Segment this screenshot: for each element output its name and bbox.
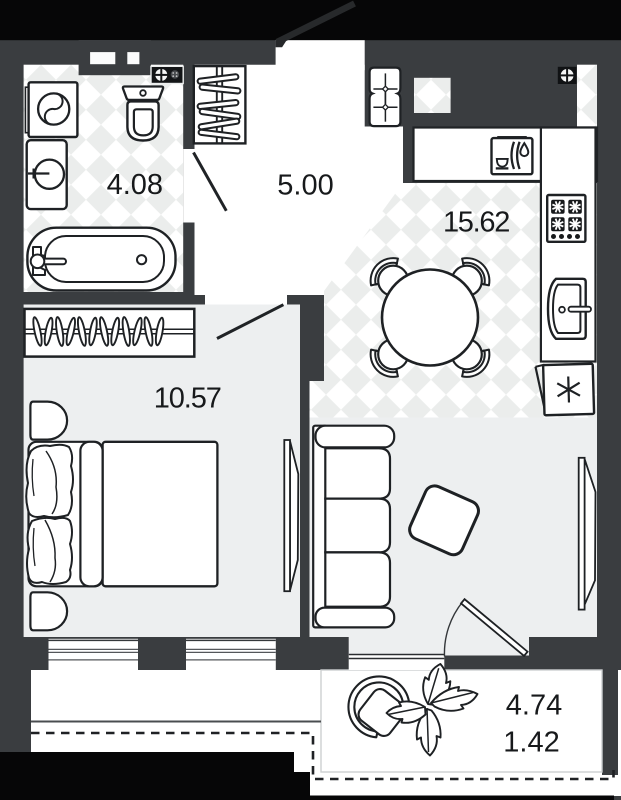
svg-text:4.08: 4.08	[107, 169, 163, 201]
svg-text:5.00: 5.00	[277, 170, 333, 202]
svg-text:1.42: 1.42	[503, 727, 559, 759]
svg-text:10.57: 10.57	[154, 383, 221, 415]
svg-text:4.74: 4.74	[506, 690, 562, 722]
svg-text:15.62: 15.62	[443, 207, 509, 239]
